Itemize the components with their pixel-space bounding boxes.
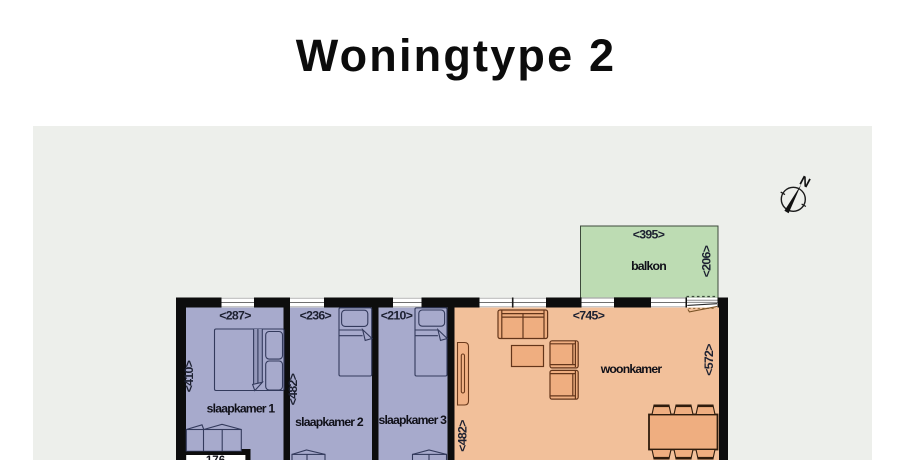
svg-text:<395>: <395>: [633, 228, 665, 242]
svg-text:<236>: <236>: [300, 309, 332, 323]
svg-text:slaapkamer 3: slaapkamer 3: [378, 413, 447, 427]
svg-text:<745>: <745>: [573, 309, 605, 323]
svg-text:slaapkamer 1: slaapkamer 1: [207, 401, 276, 415]
svg-text:<206>: <206>: [700, 245, 714, 277]
svg-text:<482>: <482>: [456, 420, 470, 452]
svg-text:slaapkamer 2: slaapkamer 2: [295, 415, 364, 429]
svg-text:balkon: balkon: [631, 259, 666, 273]
svg-text:176: 176: [206, 455, 225, 460]
svg-text:<287>: <287>: [219, 309, 251, 323]
svg-text:Woningtype 2: Woningtype 2: [296, 30, 617, 81]
svg-text:<410>: <410>: [182, 360, 196, 392]
svg-text:woonkamer: woonkamer: [600, 362, 663, 376]
svg-text:<482>: <482>: [286, 373, 300, 405]
svg-text:<572>: <572>: [702, 344, 716, 376]
svg-text:<210>: <210>: [381, 309, 413, 323]
